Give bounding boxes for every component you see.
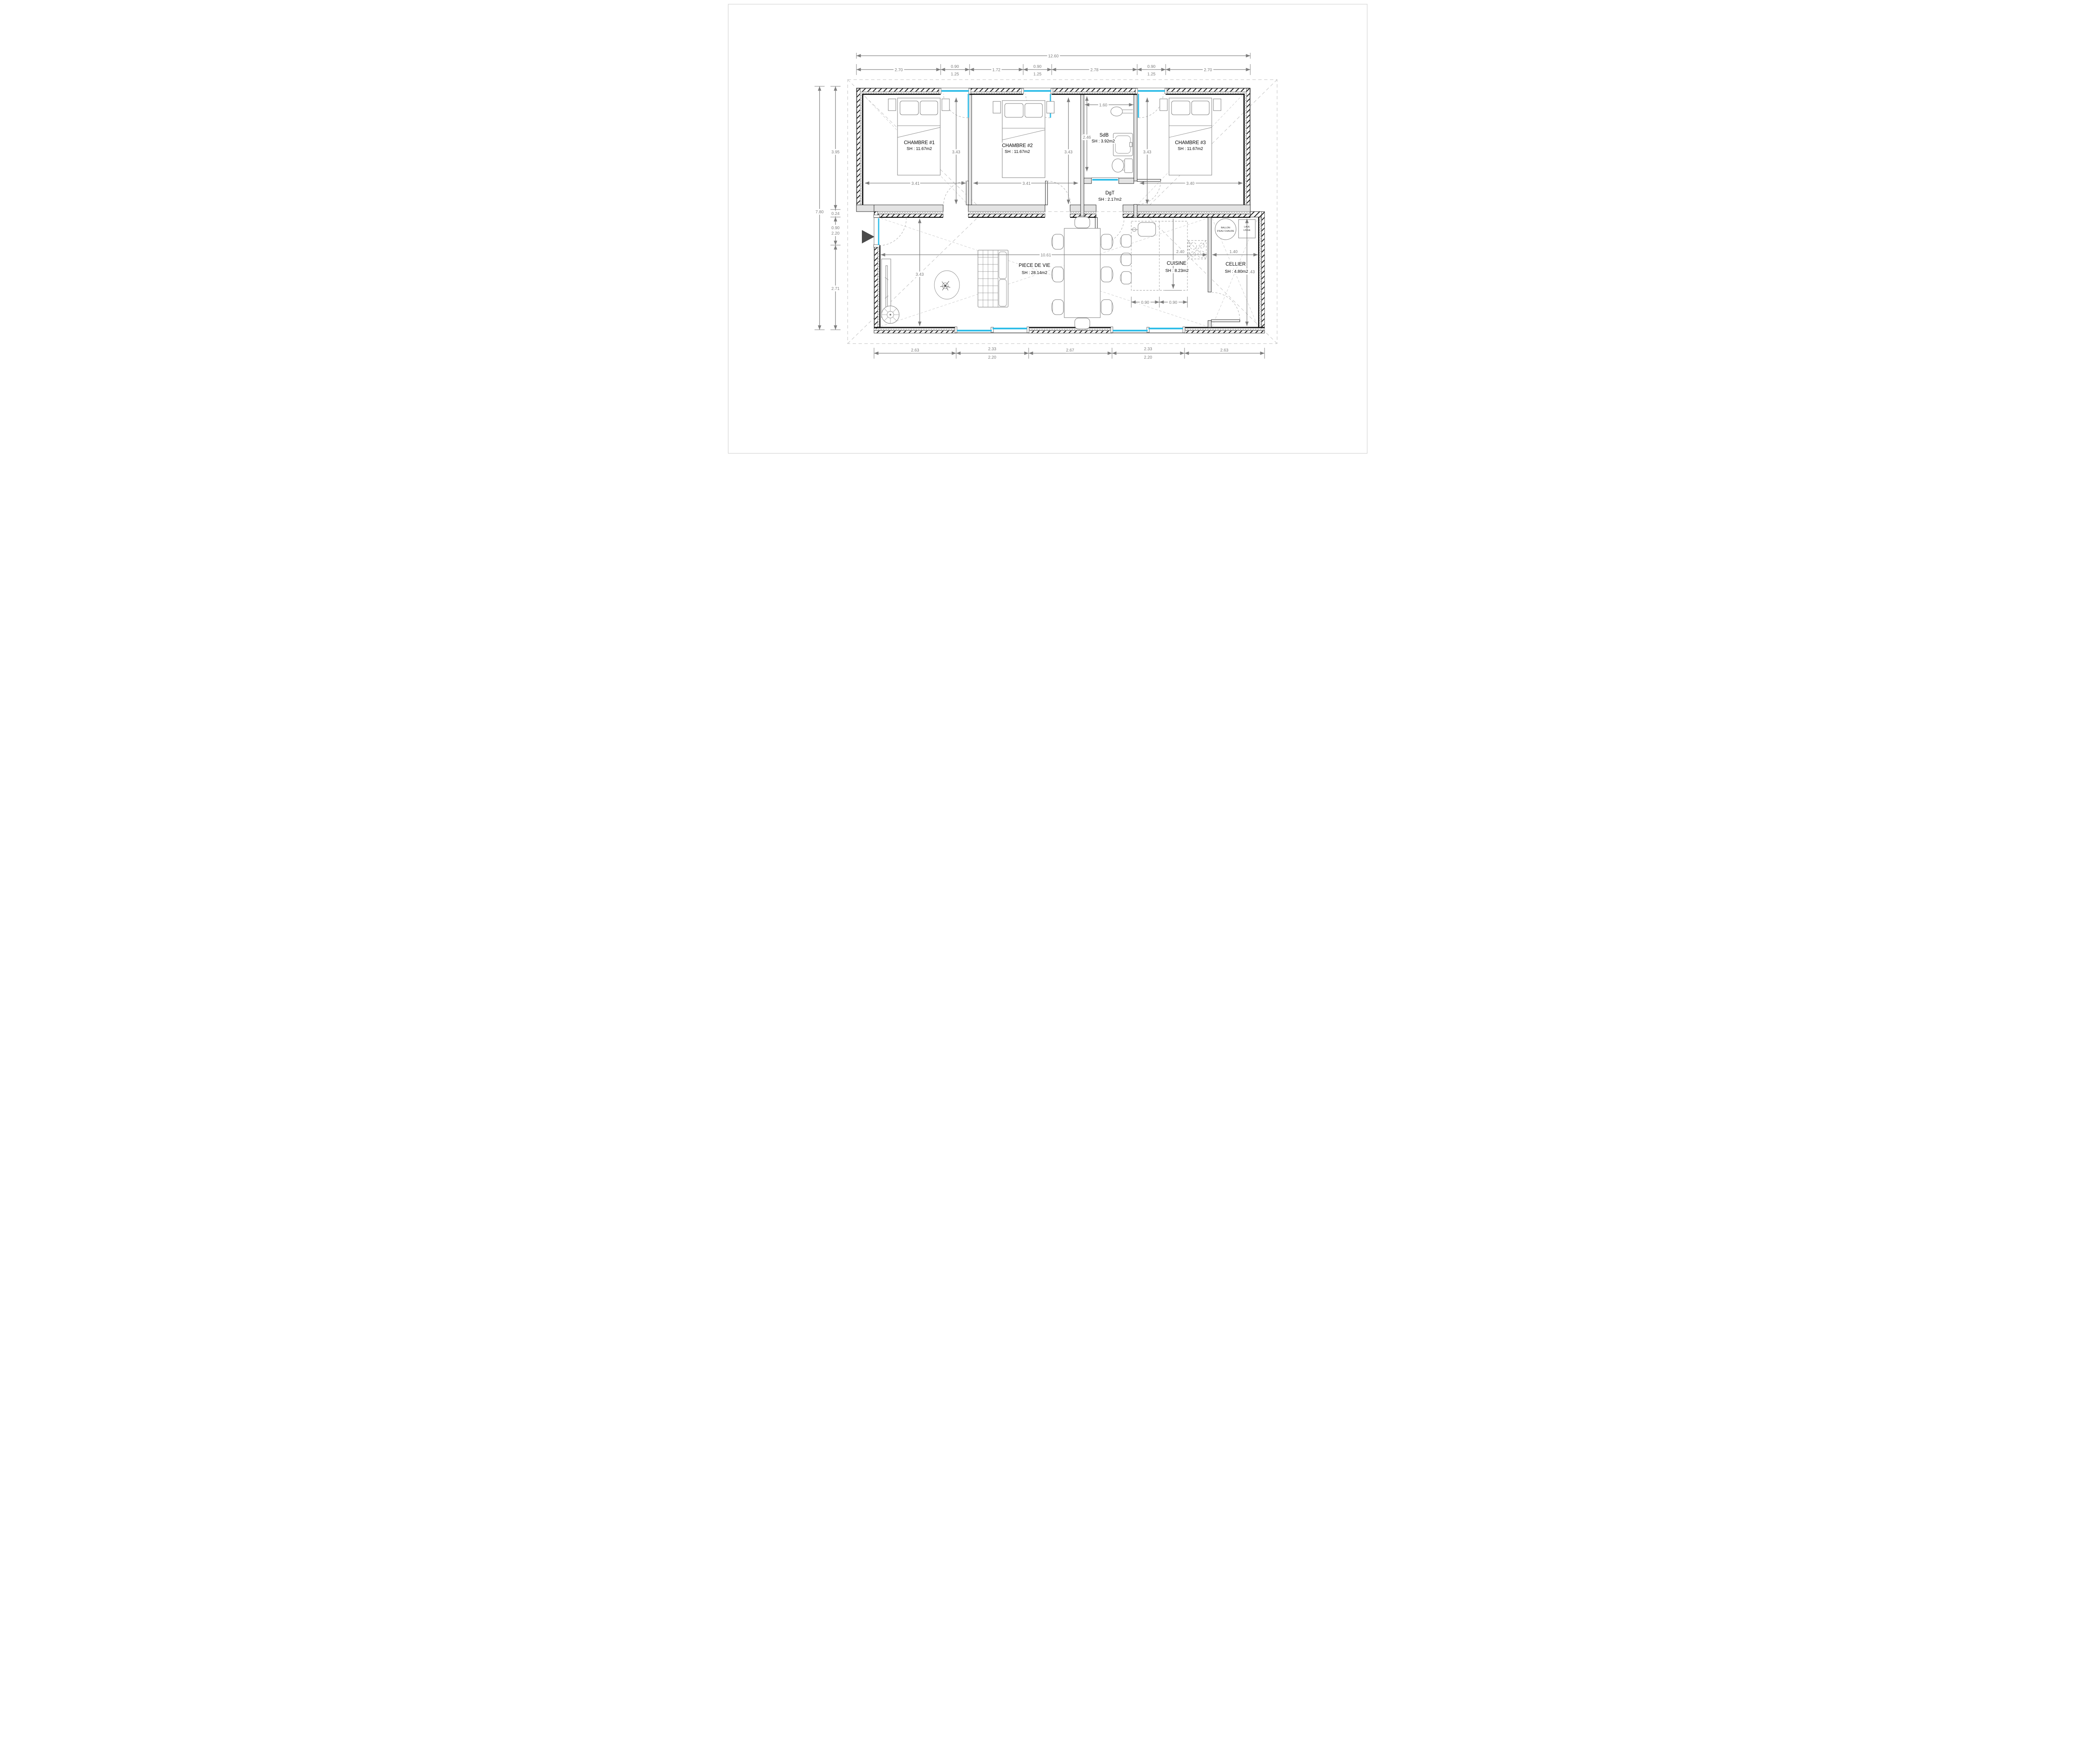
dim-island-0: 0.90 (1141, 300, 1149, 305)
label-dgt: DgT (1105, 191, 1115, 196)
wall-cuisine-cellier-lower (1208, 321, 1211, 327)
ballon-label-1: BALLON (1221, 227, 1230, 229)
wood-stove (882, 306, 899, 323)
dim-left-4: 2.71 (831, 287, 840, 291)
floor-plan-drawing: BALLON D'EAU CHAUDE LAVE LINGE 12.60 (724, 0, 1371, 458)
bar-stool (1120, 272, 1131, 284)
water-heater: BALLON D'EAU CHAUDE (1215, 219, 1236, 240)
chair (1101, 267, 1113, 282)
chair (1075, 318, 1090, 330)
dim-ch3-w: 3.40 (1186, 181, 1195, 186)
wall-sdb-ch3-upper (1134, 95, 1137, 181)
dim-bottom-5: 2.20 (1144, 355, 1152, 360)
dim-top-1: 0.90 (951, 65, 959, 69)
dim-left-2: 0.90 (831, 226, 840, 230)
label-chambre1: CHAMBRE #1 (904, 140, 935, 145)
sofa (978, 250, 1008, 307)
band-seg-b (968, 205, 1045, 217)
dim-bottom-6: 2.63 (1220, 348, 1229, 353)
bar-stool (1120, 235, 1131, 247)
label-cuisine: CUISINE (1166, 261, 1186, 266)
dim-sdb-h: 2.46 (1083, 135, 1091, 140)
dim-left-3: 2.20 (831, 231, 840, 236)
dim-ch1-h: 3.43 (952, 150, 960, 155)
label-chambre3-area: SH : 11.67m2 (1177, 147, 1203, 151)
dim-top-3: 1.72 (992, 68, 1001, 72)
dim-sdb-w: 1.60 (1099, 103, 1107, 108)
dim-bottom-3: 2.67 (1066, 348, 1074, 353)
dim-ch2-w: 3.41 (1022, 181, 1031, 186)
band-seg-a (874, 205, 943, 217)
shower (1113, 133, 1133, 156)
dim-top-total: 12.60 (1048, 54, 1058, 59)
north-wall (856, 88, 1250, 94)
dim-left-0: 3.95 (831, 150, 840, 155)
dim-top-2: 1.25 (951, 72, 959, 77)
dim-living-h: 3.43 (916, 272, 924, 277)
wall-ch2-sdb (1081, 95, 1084, 217)
dim-top-8: 1.25 (1147, 72, 1156, 77)
bed-ch2 (993, 101, 1054, 178)
floor-plan-sheet: BALLON D'EAU CHAUDE LAVE LINGE 12.60 (724, 0, 1371, 458)
label-sdb-area: SH : 3.92m2 (1091, 139, 1115, 144)
dim-bottom-1: 2.33 (988, 347, 996, 352)
dim-living-w: 10.61 (1040, 253, 1051, 258)
label-cellier: CELLIER (1226, 262, 1246, 267)
dim-top-9: 2.70 (1204, 68, 1212, 72)
dim-top-5: 1.25 (1033, 72, 1042, 77)
dim-bottom-2: 2.20 (988, 355, 996, 360)
chair (1051, 267, 1063, 282)
dim-bottom-4: 2.33 (1144, 347, 1152, 352)
dim-ch2-h: 3.43 (1064, 150, 1073, 155)
dim-bottom-0: 2.63 (911, 348, 919, 353)
wall-sdb-south-right (1119, 178, 1134, 184)
page-border (728, 4, 1367, 453)
label-dgt-area: SH : 2.17m2 (1098, 197, 1122, 202)
chair (1101, 300, 1113, 315)
dim-cuisine-d: 2.40 (1176, 250, 1185, 254)
bed-ch3 (1160, 98, 1221, 175)
label-piece-de-vie-area: SH : 28.14m2 (1022, 271, 1047, 275)
label-piece-de-vie: PIECE DE VIE (1019, 263, 1050, 268)
east-wall-lower (1259, 212, 1265, 333)
band-seg-d (1123, 205, 1250, 217)
dim-ch1-w: 3.41 (911, 181, 920, 186)
kitchen-sink (1138, 222, 1156, 236)
dim-top-7: 0.90 (1147, 65, 1156, 69)
dim-cellier-w: 1.40 (1229, 250, 1238, 254)
chair (1075, 216, 1090, 228)
wall-cuisine-cellier-upper (1208, 217, 1211, 292)
dim-ch3-h: 3.43 (1143, 150, 1151, 155)
label-chambre1-area: SH : 11.67m2 (906, 147, 932, 151)
chair (1051, 234, 1063, 249)
dim-top-6: 2.78 (1090, 68, 1099, 72)
dim-top-0: 2.70 (895, 68, 903, 72)
dim-left-1: 0.24 (831, 212, 840, 216)
chair (1051, 300, 1063, 315)
label-cuisine-area: SH : 8.23m2 (1165, 269, 1189, 273)
dim-top-4: 0.90 (1033, 65, 1042, 69)
label-sdb: SdB (1099, 133, 1109, 138)
bed-ch1 (888, 98, 949, 175)
label-chambre2: CHAMBRE #2 (1002, 143, 1033, 148)
dim-island-1: 0.90 (1169, 300, 1177, 305)
label-cellier-area: SH : 4.80m2 (1225, 269, 1248, 274)
wall-sdb-ch3-lower (1134, 204, 1137, 217)
label-chambre3: CHAMBRE #3 (1175, 140, 1206, 145)
dim-left-total: 7.80 (815, 210, 824, 215)
label-chambre2-area: SH : 11.67m2 (1004, 150, 1030, 154)
ballon-label-2: D'EAU CHAUDE (1217, 230, 1234, 233)
wall-sdb-south-left (1084, 178, 1091, 184)
west-wall-upper (856, 88, 863, 212)
chair (1101, 234, 1113, 249)
east-wall-upper (1244, 88, 1250, 212)
